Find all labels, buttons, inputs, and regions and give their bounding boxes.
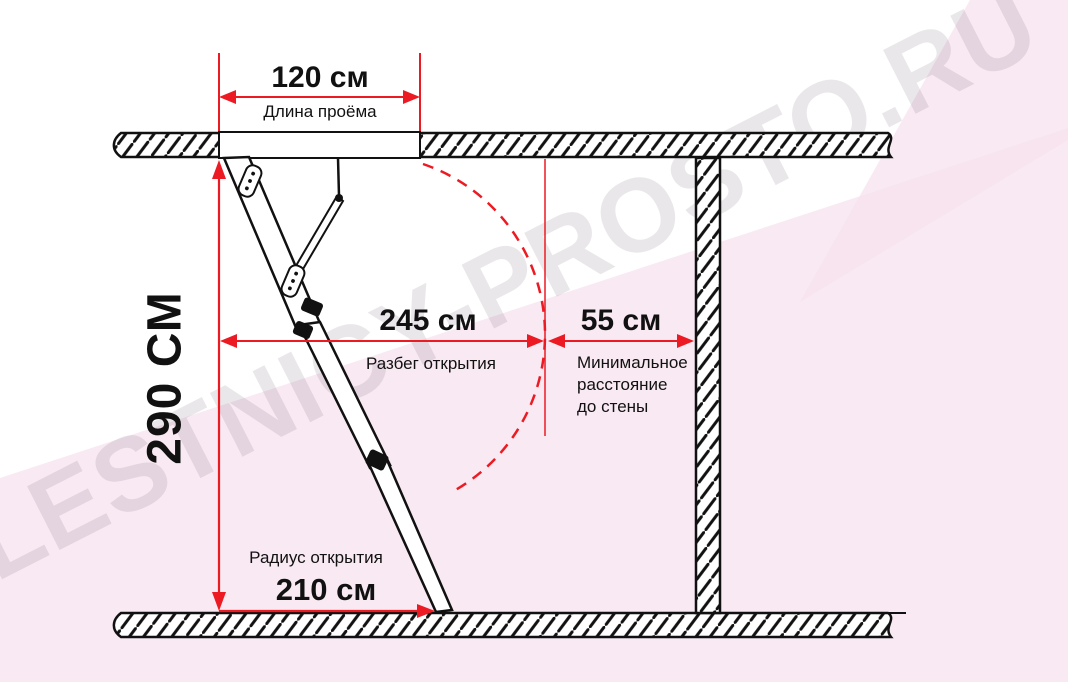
- arrowhead: [403, 90, 420, 104]
- wall-distance-line-3: до стены: [577, 396, 688, 418]
- arrowhead: [677, 334, 694, 348]
- dim-value-opening-radius: 210 см: [276, 572, 377, 608]
- dim-value-opening-width: 120 см: [271, 61, 368, 95]
- arrowhead: [219, 90, 236, 104]
- attic-ladder-dimensions-diagram: LESTNICY-PROSTO.RU: [0, 0, 1068, 682]
- dim-value-opening-run: 245 см: [379, 304, 476, 338]
- dim-value-ceiling-height: 290 СМ: [138, 291, 193, 464]
- dim-label-opening-run: Разбег открытия: [366, 354, 496, 374]
- ladder-hanger-rod: [338, 158, 339, 196]
- arrowhead: [220, 334, 237, 348]
- ladder-section-middle: [299, 322, 390, 468]
- wall: [696, 158, 720, 613]
- dim-label-opening-radius: Радиус открытия: [249, 548, 383, 568]
- arrowhead: [212, 160, 226, 179]
- arrowhead: [527, 334, 544, 348]
- floor-slab: [114, 613, 891, 637]
- dim-value-wall-distance: 55 см: [581, 304, 662, 338]
- ladder-section-bottom: [368, 460, 452, 612]
- ceiling-opening: [219, 132, 420, 158]
- arrowhead: [212, 592, 226, 611]
- strut-joint: [335, 194, 343, 202]
- attic-ladder: [224, 157, 452, 612]
- dim-label-wall-distance: Минимальное расстояние до стены: [577, 352, 688, 418]
- dim-label-opening-width: Длина проёма: [263, 102, 376, 122]
- wall-distance-line-1: Минимальное: [577, 352, 688, 374]
- arrowhead: [548, 334, 565, 348]
- wall-distance-line-2: расстояние: [577, 374, 688, 396]
